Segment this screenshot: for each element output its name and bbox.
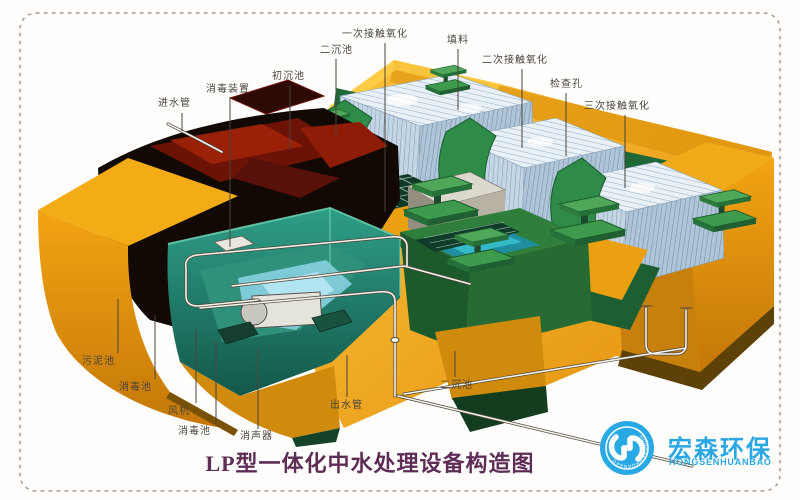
label-inlet-pipe: 进水管 <box>158 98 191 109</box>
label-sludge-tank: 污泥池 <box>82 356 115 367</box>
brand-logo: HONGSENHUANBAO 宏森环保 HONGSENHUANBAO <box>598 415 788 485</box>
label-disinfection-tank-2: 消毒池 <box>178 426 211 437</box>
label-secondary-sedimentation-tank-2: 二沉池 <box>440 380 473 391</box>
label-packing-media: 填料 <box>447 35 469 46</box>
label-disinfection-tank: 消毒池 <box>119 382 152 393</box>
brand-name-en: HONGSENHUANBAO <box>669 457 772 467</box>
label-blower: 风机 <box>168 406 190 417</box>
label-secondary-contact-oxidation: 二次接触氧化 <box>482 55 548 66</box>
label-secondary-sedimentation-tank: 二沉池 <box>320 45 353 56</box>
label-primary-sedimentation-tank: 初沉池 <box>272 71 305 82</box>
label-disinfection-device: 消毒装置 <box>206 84 250 95</box>
diagram-title: LP型一体化中水处理设备构造图 <box>190 446 550 478</box>
label-silencer: 消声器 <box>240 431 273 442</box>
label-inspection-hole: 检查孔 <box>550 79 583 90</box>
label-primary-contact-oxidation: 一次接触氧化 <box>342 29 408 40</box>
label-tertiary-contact-oxidation: 三次接触氧化 <box>584 101 650 112</box>
brand-logo-icon: HONGSENHUANBAO <box>598 419 656 477</box>
label-outlet-pipe: 出水管 <box>330 400 363 411</box>
figure-frame: 进水管 消毒装置 初沉池 二沉池 一次接触氧化 填料 二次接触氧化 检查孔 三次… <box>0 0 800 500</box>
